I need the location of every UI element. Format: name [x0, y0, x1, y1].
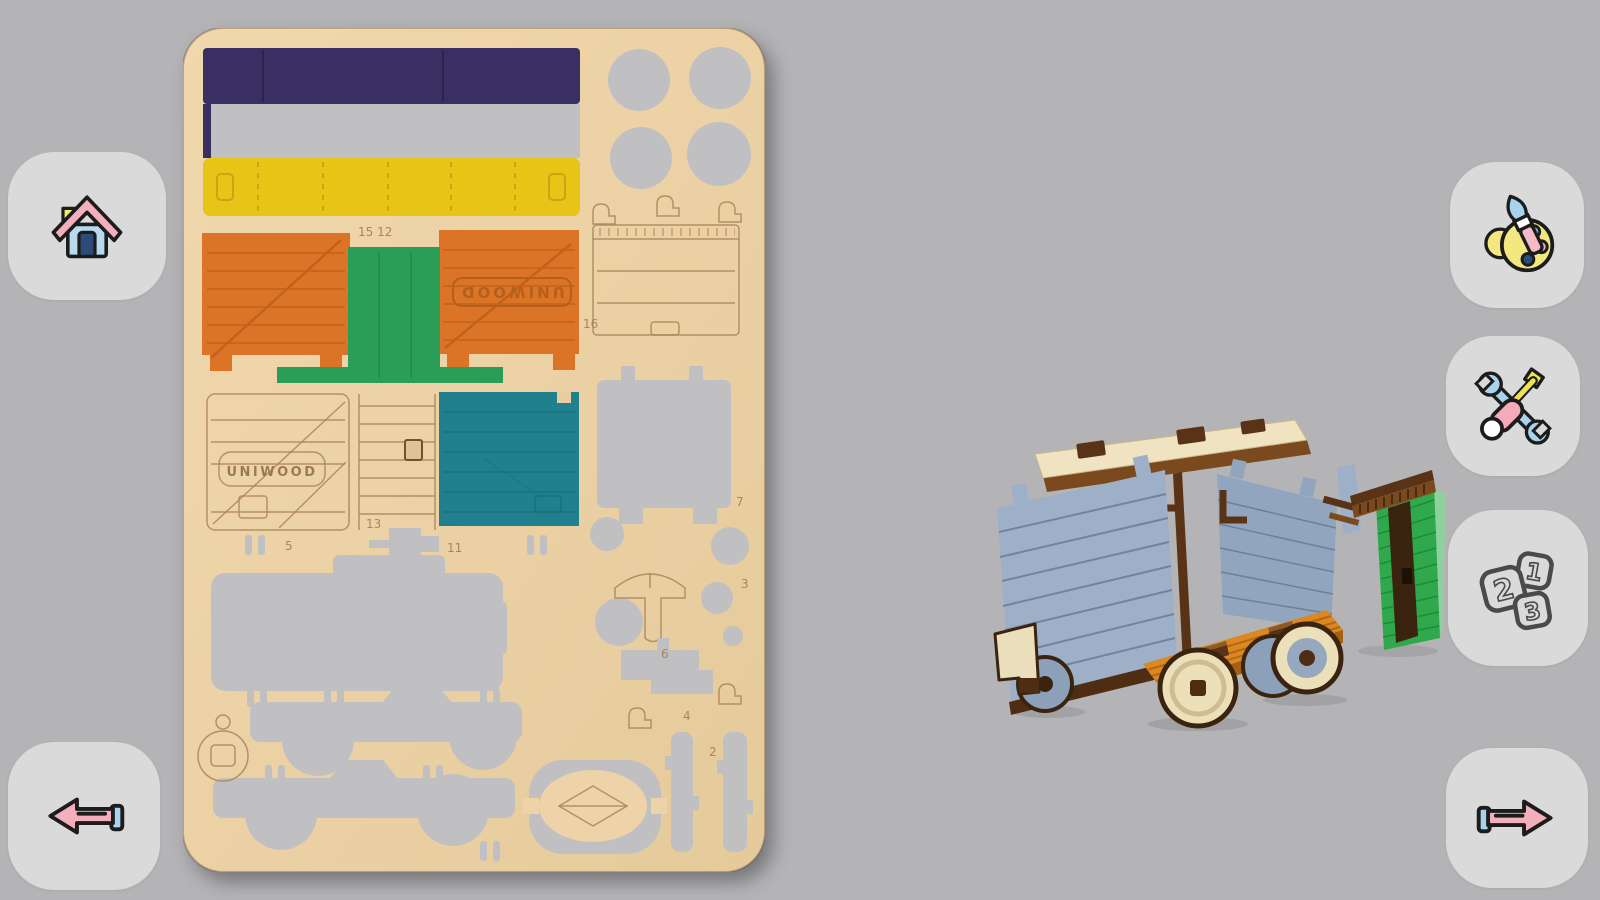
wooden-parts-sheet[interactable]: 15 12 UNIWOOD 16: [183, 28, 765, 872]
part-number: 7: [736, 495, 744, 509]
wagon-3d-model[interactable]: [985, 412, 1365, 732]
palette-brush-icon: [1475, 193, 1559, 277]
part-number: 4: [683, 709, 691, 723]
numbered-cards-icon: 1 2 3: [1473, 540, 1563, 636]
part-number: 5: [285, 539, 293, 553]
part-number: 2: [709, 745, 717, 759]
wrench-screwdriver-icon: [1471, 364, 1555, 448]
wagon-roof: [1035, 418, 1311, 492]
part-number: 3: [741, 577, 749, 591]
next-button[interactable]: [1446, 748, 1588, 888]
wagon-center-post: [1173, 472, 1192, 664]
arrow-right-icon: [1474, 790, 1560, 846]
cutout-band: [211, 104, 580, 158]
home-icon: [47, 186, 127, 266]
cutout-large-part: [211, 555, 507, 691]
paint-button[interactable]: [1450, 162, 1584, 308]
part-number: 16: [583, 317, 598, 331]
brand-engraving-mirrored: UNIWOOD: [459, 283, 565, 301]
brand-engraving: UNIWOOD: [226, 465, 317, 480]
arrow-left-icon: [41, 788, 127, 844]
back-button[interactable]: [8, 742, 160, 890]
home-button[interactable]: [8, 152, 166, 300]
game-screen: 15 12 UNIWOOD 16: [0, 0, 1600, 900]
piece-teal-panel[interactable]: [439, 392, 579, 526]
oval-piece[interactable]: [523, 760, 667, 854]
green-door-piece[interactable]: [1346, 462, 1450, 658]
cutout-stepped-part: [597, 366, 731, 524]
part-number: 11: [447, 541, 462, 555]
wagon-right-wall: [1217, 459, 1337, 630]
door-front: [1376, 484, 1440, 650]
part-number: 15 12: [358, 225, 392, 239]
part-number: 6: [661, 647, 669, 661]
steps-button[interactable]: 1 2 3: [1448, 510, 1588, 666]
part-number: 13: [366, 517, 381, 531]
assemble-button[interactable]: [1446, 336, 1580, 476]
piece-yellow-band[interactable]: [203, 158, 580, 216]
